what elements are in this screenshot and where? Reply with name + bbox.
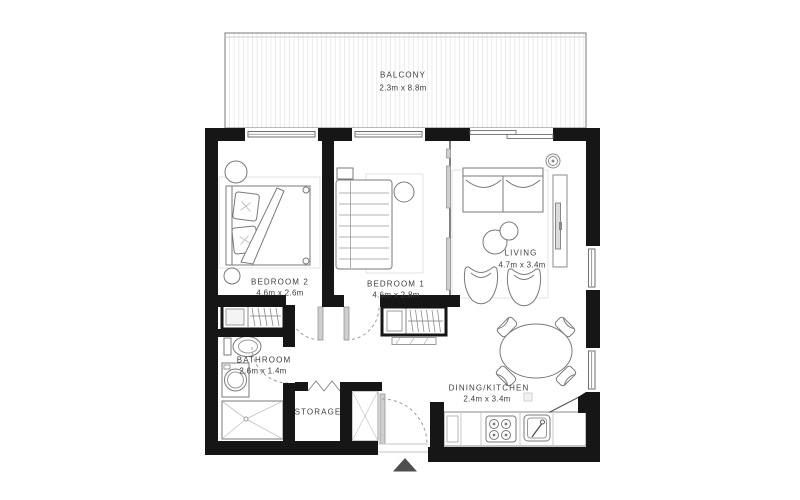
coffee-table (500, 222, 518, 240)
bedroom1-dims: 4.6m x 2.8m (372, 291, 419, 300)
toilet (224, 334, 261, 357)
tv-console (553, 175, 567, 267)
door-leaf-bedroom2 (318, 307, 323, 340)
window-dining-right (585, 348, 600, 392)
angled-corner-wall (578, 392, 586, 413)
wardrobe-bedroom1 (382, 307, 446, 345)
balcony-dims: 2.3m x 8.8m (379, 84, 426, 93)
entrance-arrow-icon (393, 458, 417, 472)
door-arc-entrance (382, 399, 427, 444)
bedroom2-furniture (224, 161, 310, 284)
living-label: LIVING (505, 249, 538, 258)
bifold-door-storage (308, 381, 340, 391)
balcony-label: BALCONY (380, 71, 426, 80)
living-furniture (463, 154, 567, 306)
living-dims: 4.7m x 3.4m (498, 261, 545, 270)
floor-plan: BALCONY 2.3m x 8.8m BEDROOM 2 4.6m x 2.6… (0, 0, 800, 500)
sink (524, 415, 550, 441)
door-leaf-bedroom1 (344, 307, 349, 340)
entrance-threshold (378, 444, 428, 452)
hob (486, 416, 516, 442)
fridge (447, 416, 458, 442)
side-table (224, 268, 240, 284)
dining-table (500, 324, 572, 378)
sliding-panel (447, 238, 451, 290)
dining-kitchen-label: DINING/KITCHEN (449, 384, 530, 393)
sliding-door-balcony (470, 128, 553, 141)
entry-closet (352, 391, 378, 441)
window-bedroom2 (245, 128, 318, 141)
wardrobe-bathroom (222, 305, 284, 329)
bathroom-dims: 2.6m x 1.4m (239, 367, 286, 376)
ceiling-light-icon (546, 154, 560, 168)
small-square-marker-icon (524, 393, 532, 401)
door-arc-bedroom1 (346, 307, 379, 340)
kitchen-counter (444, 398, 586, 447)
dining-kitchen-dims: 2.4m x 3.4m (463, 395, 510, 404)
bedroom1-furniture (336, 168, 414, 269)
shower (222, 401, 283, 439)
door-leaf-entrance (380, 394, 385, 444)
balcony-deck (225, 33, 586, 128)
bathroom-label: BATHROOM (237, 356, 291, 365)
bedroom2-label: BEDROOM 2 (251, 278, 309, 287)
storage-label: STORAGE (295, 408, 342, 417)
angled-wall-line (549, 398, 578, 413)
nightstand (337, 168, 353, 179)
sofa (463, 168, 543, 212)
window-living-right (585, 246, 600, 290)
armchair (507, 269, 540, 306)
pillow (233, 192, 260, 222)
sliding-panel (447, 166, 451, 208)
window-bedroom1 (352, 128, 425, 141)
bedroom2-dims: 4.6m x 2.6m (256, 289, 303, 298)
bedroom1-label: BEDROOM 1 (367, 280, 425, 289)
ottoman (394, 182, 414, 202)
side-table (225, 161, 247, 183)
